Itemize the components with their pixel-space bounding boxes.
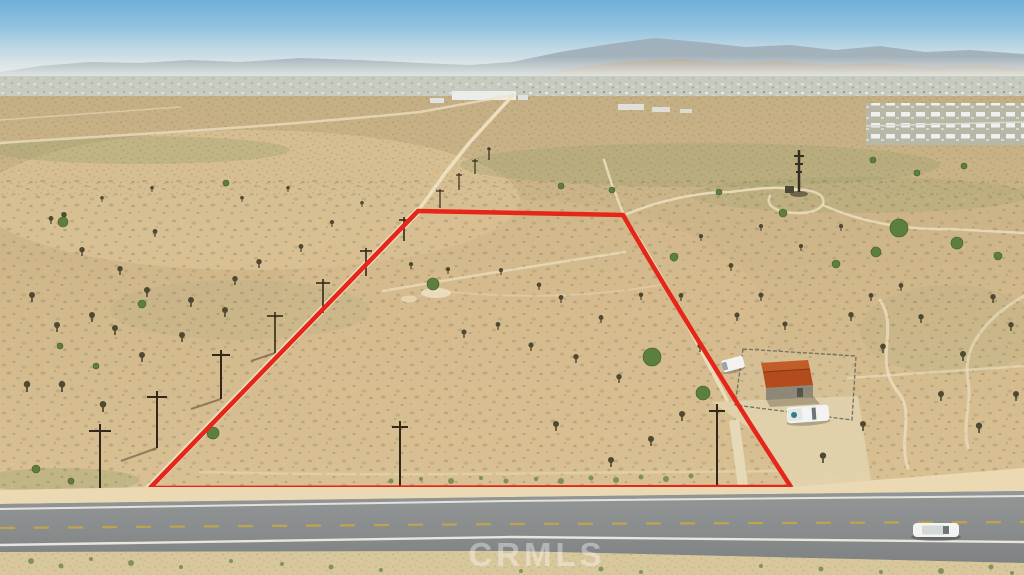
watermark: CRMLS: [468, 536, 605, 573]
aerial-photo: CRMLS: [0, 0, 1024, 575]
car-on-road: [911, 523, 961, 541]
housing-development: [866, 103, 1024, 145]
